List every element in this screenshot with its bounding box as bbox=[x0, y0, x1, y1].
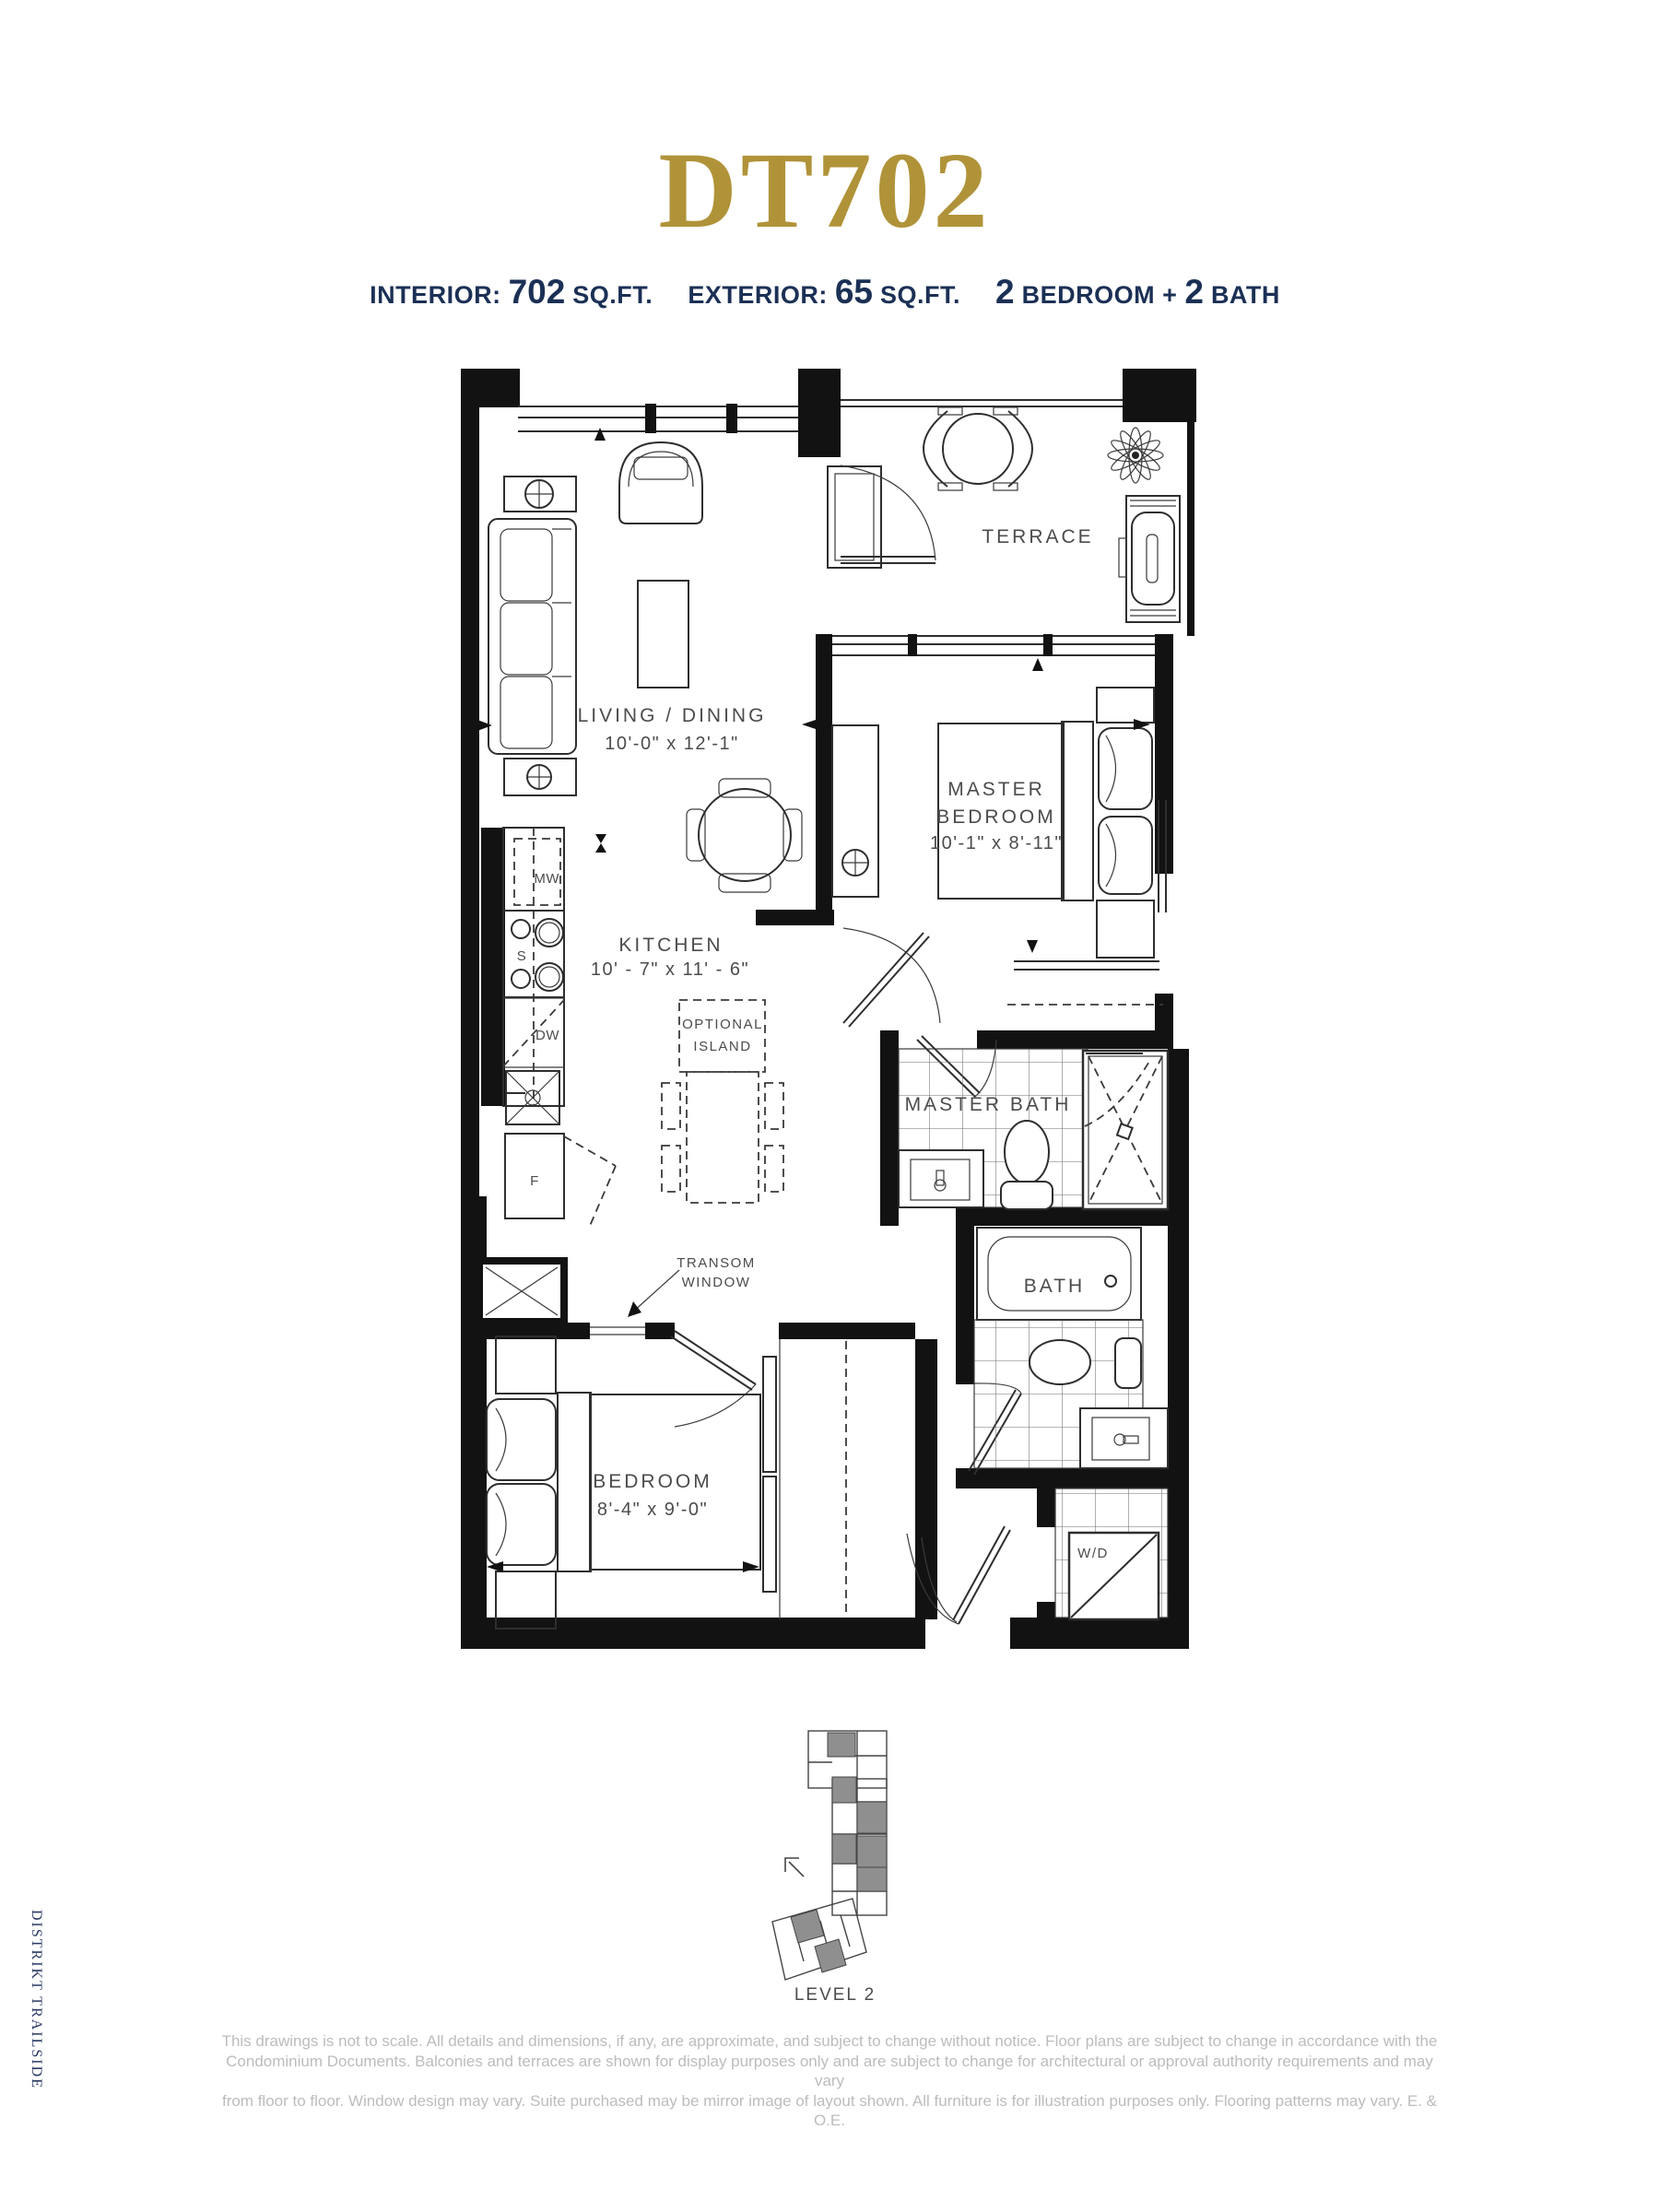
terrace-plant bbox=[1108, 428, 1163, 483]
bedroom-nightstand-top bbox=[496, 1336, 556, 1394]
kitchen-label: KITCHEN bbox=[618, 935, 723, 956]
optional-island-label-1: OPTIONAL bbox=[682, 1017, 763, 1032]
microwave-label: MW bbox=[534, 871, 559, 887]
stove-label: S bbox=[517, 948, 527, 964]
bath-vanity bbox=[1080, 1408, 1168, 1468]
optional-island-label-2: ISLAND bbox=[693, 1039, 751, 1054]
pantry-closet bbox=[479, 1261, 564, 1322]
bedroom-closet bbox=[763, 1339, 846, 1619]
master-bath-label: MASTER BATH bbox=[905, 1094, 1072, 1115]
transom-label-2: WINDOW bbox=[682, 1275, 751, 1290]
coffee-table bbox=[638, 581, 688, 688]
transom-label-1: TRANSOM bbox=[677, 1255, 756, 1271]
page-title: DT702 bbox=[0, 136, 1650, 245]
master-closet bbox=[1007, 961, 1163, 1005]
master-bedroom-door bbox=[843, 928, 940, 1027]
unit-stats: INTERIOR:702SQ.FT.EXTERIOR:65SQ.FT.2BEDR… bbox=[0, 273, 1650, 312]
laundry-label: W/D bbox=[1077, 1546, 1109, 1561]
bedroom-dimensions: 8'-4" x 9'-0" bbox=[597, 1500, 708, 1520]
sink bbox=[505, 1071, 559, 1124]
config-end: BATH bbox=[1211, 281, 1280, 309]
master-nightstand-bottom bbox=[1097, 900, 1154, 958]
interior-value: 702 bbox=[509, 273, 566, 311]
fridge bbox=[505, 1134, 616, 1226]
kitchen-dimensions: 10' - 7" x 11' - 6" bbox=[591, 959, 749, 980]
disclaimer-line-1: This drawings is not to scale. All detai… bbox=[221, 2031, 1438, 2052]
lounge-chair bbox=[1119, 496, 1180, 622]
keyplan: LEVEL 2 bbox=[772, 1731, 887, 2005]
living-furniture bbox=[488, 442, 802, 892]
sofa bbox=[488, 519, 576, 754]
terrace-furniture bbox=[924, 407, 1180, 622]
kitchen-counters bbox=[503, 828, 616, 1226]
config-mid: BEDROOM + bbox=[1022, 281, 1178, 309]
terrace-door bbox=[828, 465, 935, 568]
exterior-label: EXTERIOR: bbox=[688, 281, 828, 309]
north-arrow bbox=[785, 1858, 804, 1877]
master-bath-fixtures bbox=[899, 1049, 1168, 1209]
disclaimer: This drawings is not to scale. All detai… bbox=[221, 2031, 1438, 2131]
living-dining-label: LIVING / DINING bbox=[578, 705, 767, 726]
bedroom-door bbox=[671, 1331, 756, 1427]
terrace-label: TERRACE bbox=[982, 526, 1093, 547]
bath-label: BATH bbox=[1024, 1276, 1085, 1297]
dishwasher-label: DW bbox=[535, 1028, 559, 1043]
master-nightstand-top bbox=[1097, 688, 1154, 723]
dining-table bbox=[687, 779, 802, 892]
bath-fixtures bbox=[974, 1228, 1168, 1468]
shower bbox=[1083, 1051, 1168, 1209]
interior-unit: SQ.FT. bbox=[572, 281, 653, 309]
disclaimer-line-3: from floor to floor. Window design may v… bbox=[221, 2091, 1438, 2131]
keyplan-level-label: LEVEL 2 bbox=[794, 1985, 876, 2005]
master-bedroom-label-2: BEDROOM bbox=[936, 806, 1056, 828]
master-toilet bbox=[1001, 1121, 1053, 1209]
exterior-unit: SQ.FT. bbox=[880, 281, 960, 309]
master-bedroom-label-1: MASTER bbox=[947, 779, 1045, 800]
armchair bbox=[619, 442, 702, 524]
side-table-bottom bbox=[504, 759, 576, 795]
living-dining-dimensions: 10'-0" x 12'-1" bbox=[605, 734, 739, 754]
bathtub bbox=[977, 1228, 1141, 1320]
bedroom-furniture bbox=[479, 1261, 846, 1629]
laundry-closet bbox=[1055, 1488, 1168, 1619]
interior-label: INTERIOR: bbox=[370, 281, 501, 309]
floor-plan-svg: TERRACE LIVING / DINING 10'-0" x 12'-1" … bbox=[0, 350, 1659, 2028]
transom-arrow bbox=[628, 1270, 679, 1317]
bedroom-label: BEDROOM bbox=[593, 1471, 712, 1492]
master-dresser bbox=[832, 725, 878, 897]
disclaimer-line-2: Condominium Documents. Balconies and ter… bbox=[221, 2052, 1438, 2091]
config-num1: 2 bbox=[995, 273, 1015, 311]
config-num2: 2 bbox=[1184, 273, 1204, 311]
fridge-label: F bbox=[530, 1173, 539, 1189]
master-vanity bbox=[899, 1150, 983, 1207]
exterior-value: 65 bbox=[835, 273, 873, 311]
master-bedroom-dimensions: 10'-1" x 8'-11" bbox=[930, 833, 1063, 853]
side-table-top bbox=[504, 477, 576, 512]
terrace-table-chairs bbox=[924, 407, 1032, 490]
